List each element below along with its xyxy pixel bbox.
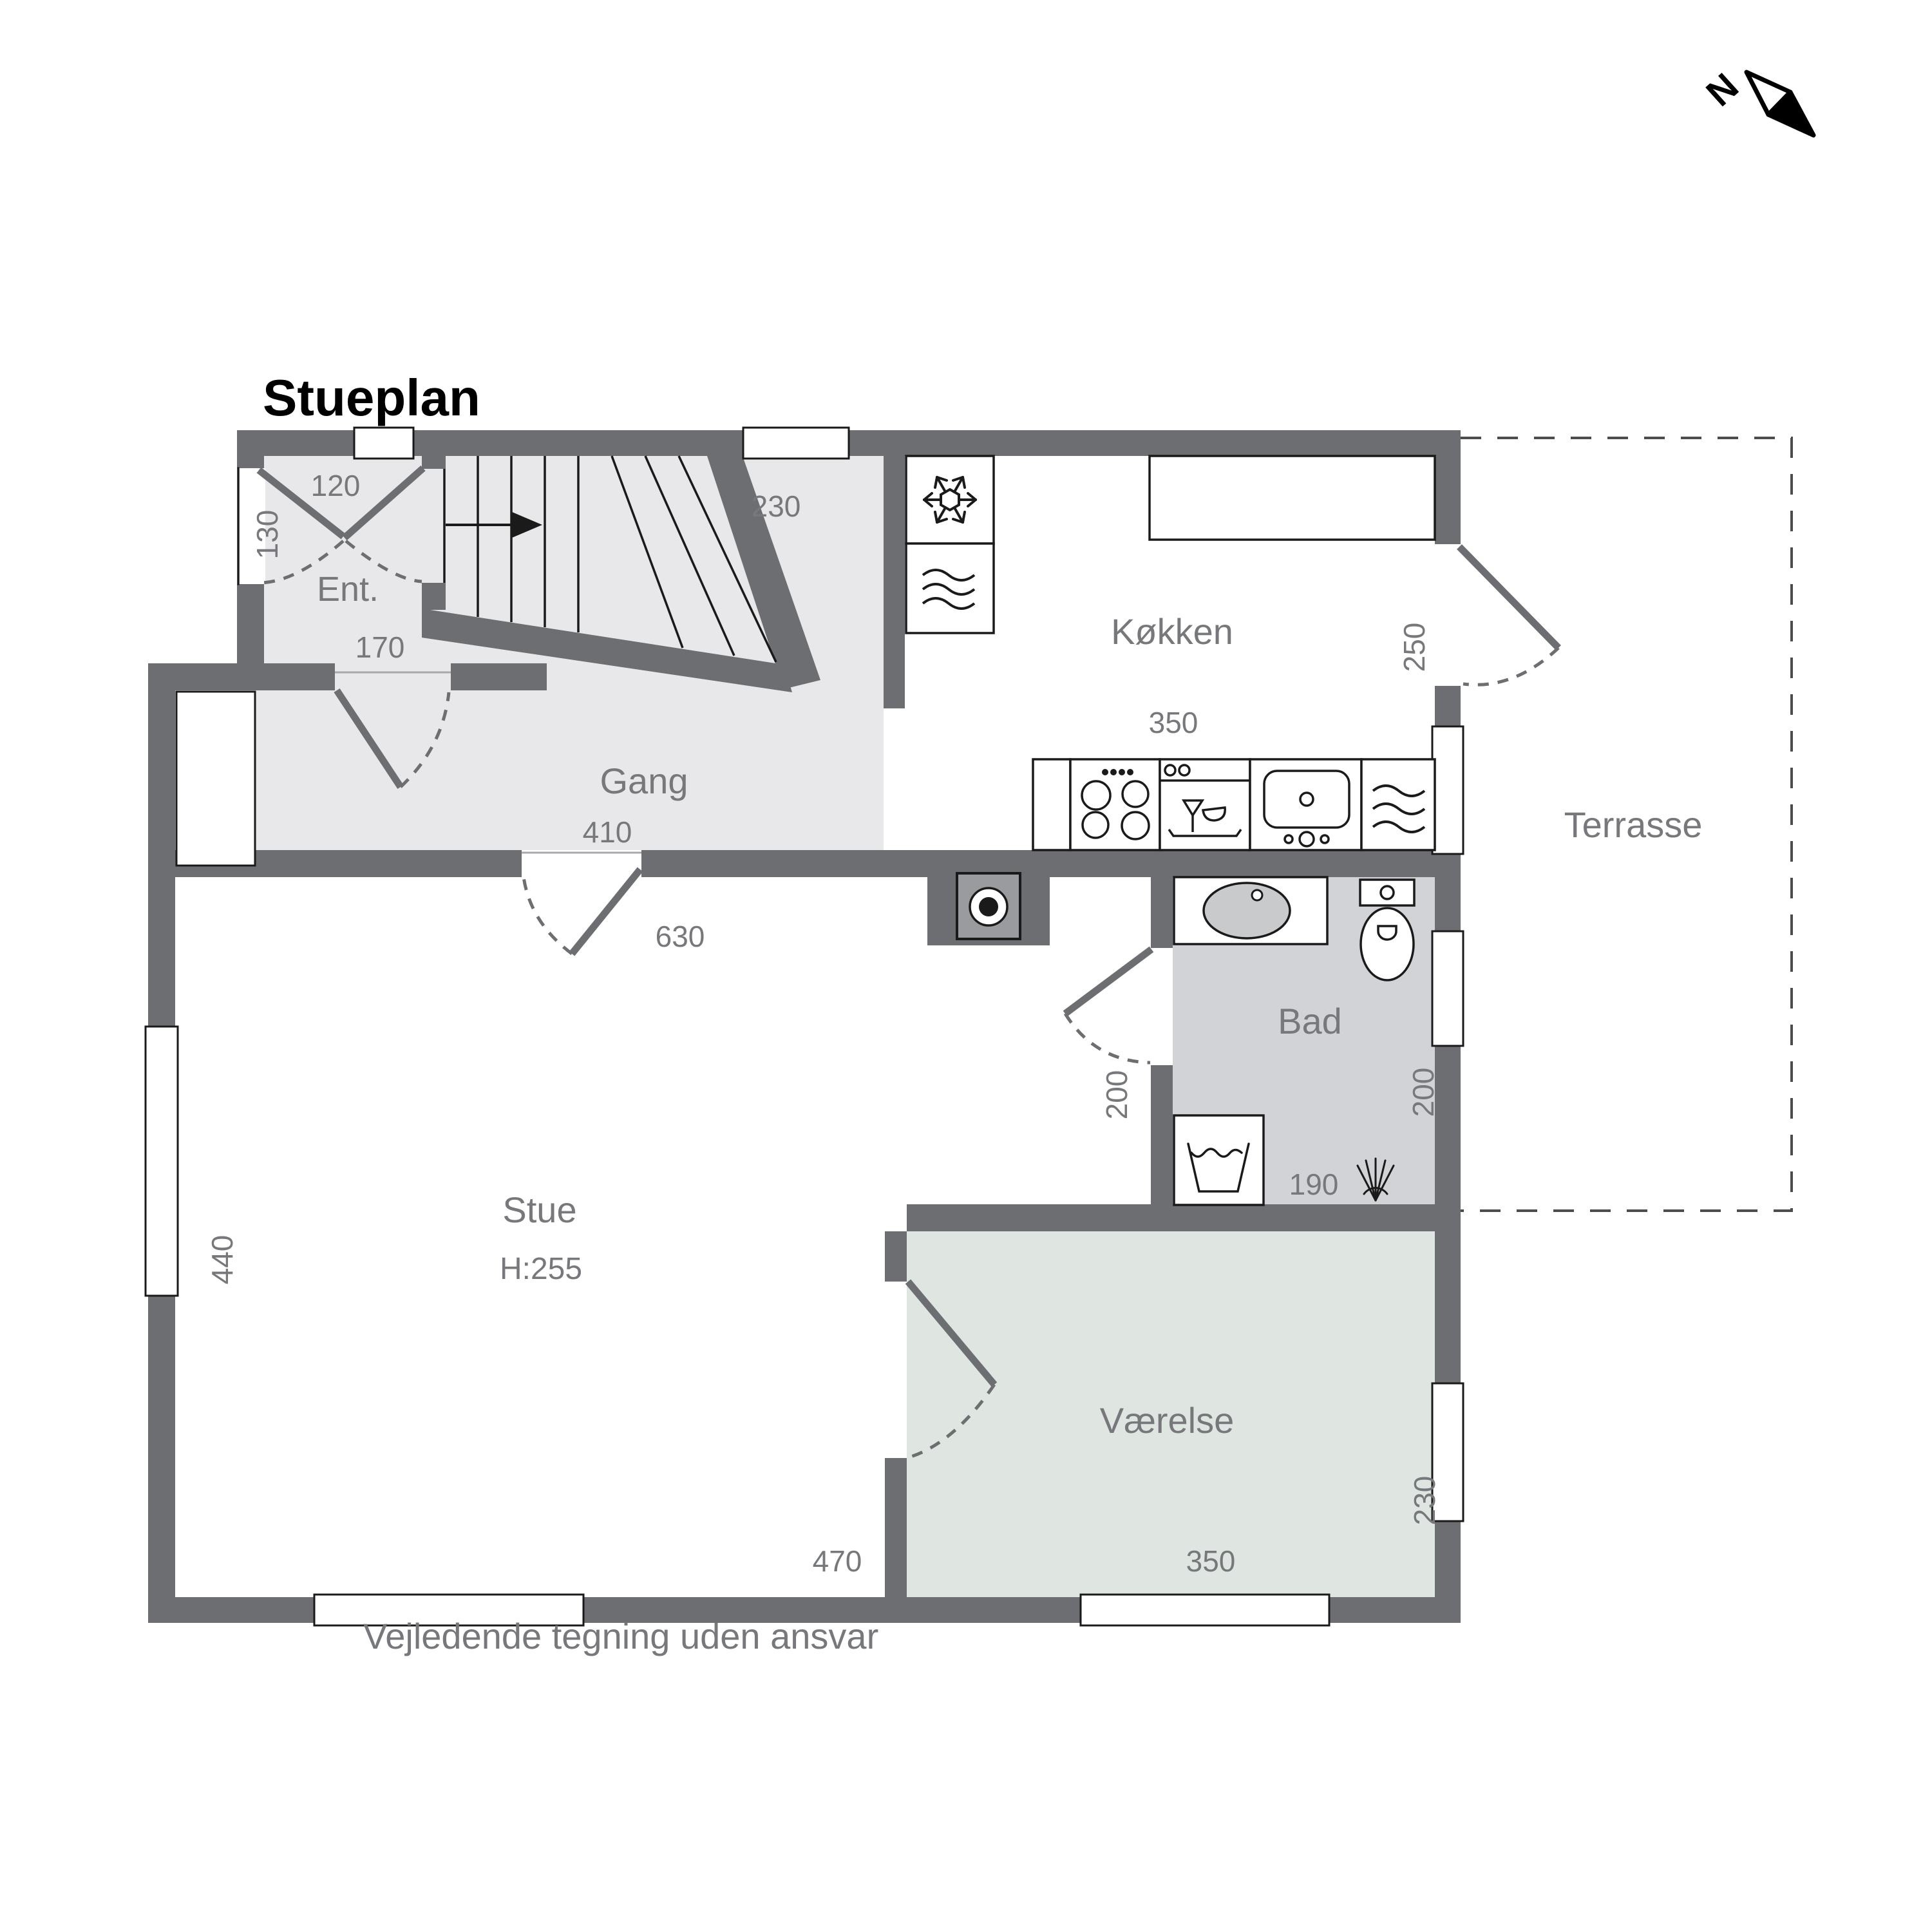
counter-segment	[1033, 759, 1070, 850]
opening-kitchen-terrace-door	[1434, 544, 1463, 686]
wall-bath-left-upper	[1151, 877, 1173, 948]
dim-ent-door: 120	[311, 469, 361, 502]
dim-ent-side-door: 130	[251, 510, 284, 560]
wall-bedroom-left-upper	[885, 1231, 907, 1282]
room-label-gang: Gang	[600, 761, 688, 801]
window-hall-top	[743, 428, 849, 459]
door-leaf	[1065, 949, 1151, 1014]
wall-mid-right	[1046, 850, 1435, 877]
wall-stair-stub	[422, 583, 446, 610]
room-label-terrace: Terrasse	[1564, 804, 1703, 845]
dim-ent-closet: 170	[355, 630, 405, 664]
dim-bedroom-width: 350	[1186, 1544, 1236, 1578]
dim-bedroom-height: 230	[1408, 1476, 1441, 1526]
dim-kitchen-width: 350	[1149, 706, 1198, 739]
door-swing-arc	[1463, 648, 1558, 685]
dim-hall-top: 230	[752, 489, 801, 523]
dim-living-width: 470	[813, 1544, 862, 1578]
room-label-ent: Ent.	[317, 570, 379, 609]
counter-appliance	[1361, 759, 1435, 850]
room-label-bedroom: Værelse	[1100, 1400, 1235, 1441]
wall-entrance-step	[148, 663, 335, 690]
window-living-left	[146, 1027, 178, 1296]
door-swing-arc	[523, 872, 572, 954]
dim-bath-door: 200	[1100, 1070, 1133, 1120]
disclaimer-text: Vejledende tegning uden ansvar	[363, 1616, 878, 1656]
window-ent-top	[354, 428, 413, 459]
dim-kitchen-terrace-door: 250	[1397, 623, 1431, 672]
fireplace-stove	[957, 873, 1020, 939]
washing-machine	[1174, 1115, 1264, 1205]
washbasin	[1204, 883, 1290, 938]
door-living-opening	[523, 869, 640, 954]
wall-entrance-stub	[451, 663, 547, 690]
dim-living-height: 440	[205, 1235, 239, 1285]
dim-bath-length: 190	[1289, 1168, 1339, 1201]
washbasin-tap-icon	[1252, 890, 1262, 900]
window-bedroom-bottom	[1081, 1595, 1329, 1625]
wardrobe	[176, 692, 255, 866]
door-kitchen-terrace	[1459, 547, 1558, 685]
wall-bedroom-left-lower	[885, 1458, 907, 1597]
page-title: Stueplan	[263, 369, 480, 426]
living-ceiling-height: H:255	[500, 1252, 582, 1286]
wall-mid-center	[641, 850, 932, 877]
floors	[175, 456, 1435, 1597]
oven	[906, 544, 994, 633]
dim-living-opening: 630	[656, 920, 705, 953]
north-arrow: N	[1698, 65, 1814, 135]
door-leaf	[572, 869, 640, 954]
wall-kitchen-left	[884, 456, 905, 708]
kitchen-counter-bottom	[1033, 759, 1435, 850]
room-label-kitchen: Køkken	[1111, 611, 1233, 652]
window-kitchen-right	[1432, 726, 1463, 854]
door-bath	[1065, 949, 1151, 1063]
fireplace-core-icon	[979, 897, 998, 916]
window-bath-right	[1432, 931, 1463, 1046]
toilet	[1360, 880, 1414, 980]
room-label-living: Stue	[502, 1189, 576, 1230]
toilet-bowl	[1361, 908, 1414, 980]
door-swing-arc	[1065, 1014, 1150, 1063]
dim-hall-width: 410	[583, 815, 632, 849]
wall-bath-bottom	[907, 1204, 1435, 1231]
door-leaf	[1459, 547, 1558, 648]
toilet-cistern	[1360, 880, 1414, 905]
north-label: N	[1698, 65, 1747, 114]
wall-stair-notch	[422, 456, 446, 469]
kitchen-counter-top	[1150, 456, 1435, 540]
dim-bath-width: 200	[1406, 1068, 1440, 1117]
floorplan-canvas: N Stueplan 120 130 Ent. 230 170 Gang 410…	[0, 0, 1932, 1932]
room-label-bath: Bad	[1278, 1001, 1342, 1041]
